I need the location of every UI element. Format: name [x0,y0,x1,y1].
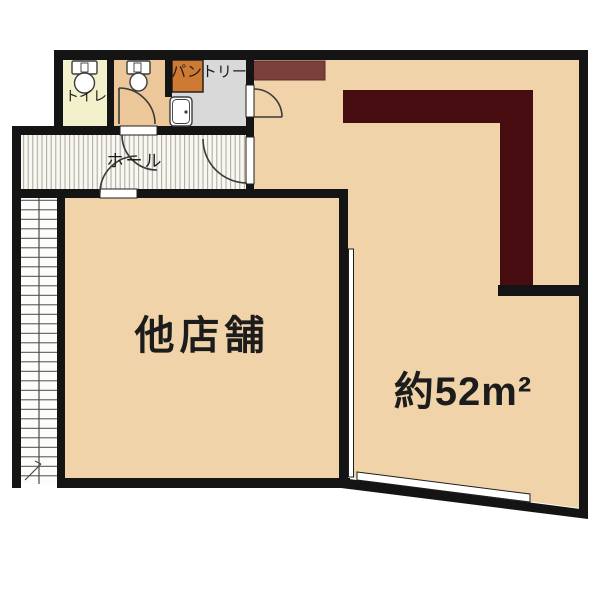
window-shop-partition [349,249,354,477]
wall-pantry-main-1 [246,50,254,85]
room-label-hall: ホール [107,153,164,170]
wall-counter-stub [498,285,588,296]
door-gap-hall-shop [100,189,137,198]
wall-hall-bottom-right [137,189,348,198]
door-gap-room2 [120,126,157,135]
wall-shelf [253,61,325,80]
wall-hall-bottom-left [12,189,100,198]
wall-right [579,50,588,512]
wall-shop-bottom [57,478,350,488]
wall-top [54,50,588,60]
wall-pantry-main-2 [246,117,254,137]
room-label-pantry: パントリー [171,65,247,80]
staircase [21,198,57,484]
sink-icon [170,97,192,126]
room-label-toilet: トイレ [65,89,107,103]
wall-stairs-shop [57,198,65,478]
wall-shop-right [339,189,348,484]
room-label-main-area: 約52m² [394,372,532,412]
wall-hall-top-right [157,126,254,135]
wall-hall-top-left [12,126,120,135]
door-gap-hall-main [246,137,254,184]
floor-plan: トイレ パントリー ホール 他店舗 約52m² [0,0,600,600]
wall-left [12,126,21,488]
door-gap-pantry [246,85,254,117]
wall-toilet-room2 [107,50,114,135]
room-label-other-shop: 他店舗 [135,316,270,356]
wall-toilet-left [54,50,63,135]
